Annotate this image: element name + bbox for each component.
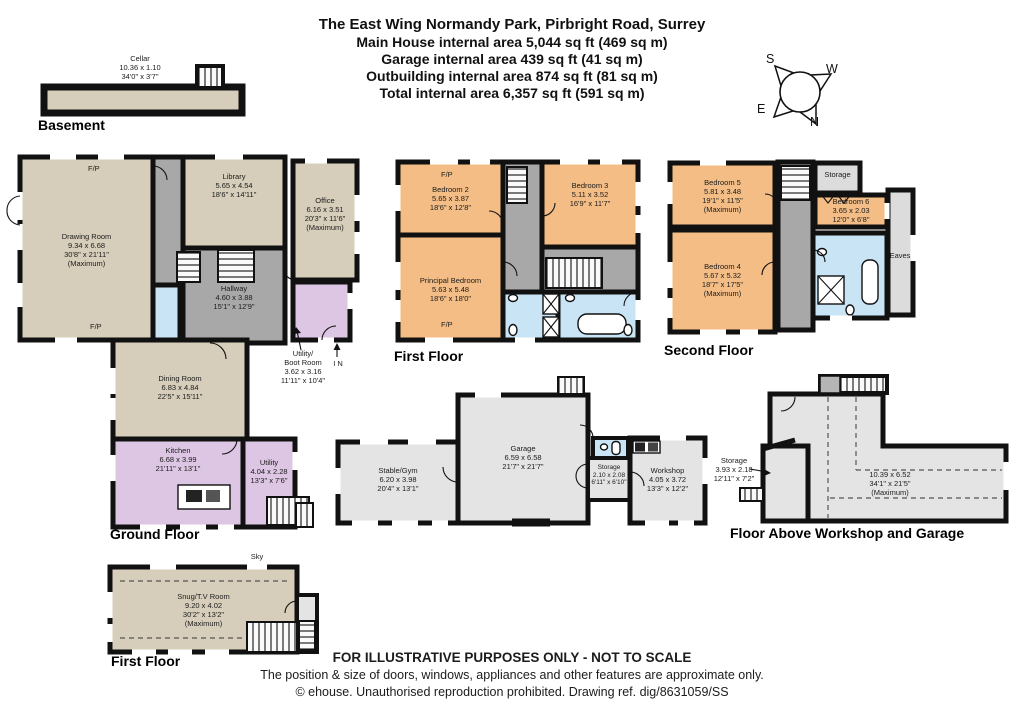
room-dims-metric: 6.83 x 4.84 [113, 383, 247, 392]
room-dims-imperial: 20'3" x 11'6" [293, 214, 357, 223]
room-name: Storage [815, 170, 860, 179]
room-dims-metric: 5.65 x 3.87 [398, 194, 503, 203]
room-storage-above [763, 446, 808, 521]
room-dims-imperial: 22'5" x 15'11" [113, 392, 247, 401]
entrance-label: I N [329, 359, 347, 368]
room-name: Hallway [183, 284, 285, 293]
first-stairs-up [507, 167, 527, 203]
room-dims-imperial: 20'4" x 13'1" [338, 484, 458, 493]
above-stairs-landing [820, 376, 840, 393]
second-stairs [781, 166, 810, 200]
garage-door [512, 519, 550, 527]
room-dims-metric: 3.65 x 2.03 [815, 206, 887, 215]
room-dims-metric: 5.81 x 3.48 [670, 187, 775, 196]
room-dims-imperial: 34'1" x 21'5" [838, 479, 942, 488]
room-name: Office [293, 196, 357, 205]
fireplace-label: F/P [441, 320, 453, 329]
room-dims-imperial: 15'1" x 12'9" [183, 302, 285, 311]
room-name: Bedroom 4 [670, 262, 775, 271]
room-dims-metric: 3.93 x 2.18 [708, 465, 760, 474]
room-label-storage-second: Storage [815, 170, 860, 179]
room-name: Garage [458, 444, 588, 453]
room-label-storage-above: Storage 3.93 x 2.18 12'11" x 7'2" [708, 456, 760, 483]
garage-stairs [558, 377, 584, 394]
caption-basement: Basement [38, 117, 105, 133]
compass-east: E [757, 102, 765, 116]
room-dims-metric: 2.10 x 2.08 [588, 472, 630, 480]
room-label-bedroom-6: Bedroom 6 3.65 x 2.03 12'0" x 6'8" [815, 197, 887, 224]
property-address: The East Wing Normandy Park, Pirbright R… [0, 16, 1024, 34]
workshop-kitchenette [633, 441, 660, 453]
skylight [247, 564, 267, 570]
caption-ground-floor: Ground Floor [110, 526, 199, 542]
footer-copyright: © ehouse. Unauthorised reproduction proh… [0, 685, 1024, 699]
room-dims-imperial: 34'0" x 3'7" [95, 72, 185, 81]
ground-stairs-1 [177, 252, 200, 282]
room-dims-imperial: 13'3" x 12'2" [630, 484, 705, 493]
in-label: I N [329, 359, 347, 368]
room-name: Workshop [630, 466, 705, 475]
caption-first-floor: First Floor [394, 348, 463, 364]
ground-wc [153, 285, 180, 342]
room-label-bedroom-2: Bedroom 2 5.65 x 3.87 18'6" x 12'8" [398, 185, 503, 212]
floorplan-page: The East Wing Normandy Park, Pirbright R… [0, 0, 1024, 723]
ground-stairs-2 [218, 250, 254, 282]
room-dims-imperial: 13'3" x 7'6" [243, 476, 295, 485]
room-name: Bedroom 3 [542, 181, 638, 190]
room-note: (Maximum) [110, 619, 297, 628]
room-dims-imperial: 12'11" x 7'2" [708, 474, 760, 483]
room-label-dining-room: Dining Room 6.83 x 4.84 22'5" x 15'11" [113, 374, 247, 401]
sky-label: Sky [243, 552, 271, 561]
room-name: Eaves [876, 251, 924, 260]
room-dims-metric: 5.11 x 3.52 [542, 190, 638, 199]
room-label-kitchen: Kitchen 6.68 x 3.99 21'11" x 13'1" [113, 446, 243, 473]
room-dims-imperial: 19'1" x 11'5" [670, 196, 775, 205]
room-dims-imperial: 6'11" x 6'10" [588, 479, 630, 487]
room-name: Utility/ [258, 349, 348, 358]
room-name: Library [183, 172, 285, 181]
room-note: (Maximum) [670, 289, 775, 298]
room-label-utility: Utility 4.04 x 2.28 13'3" x 7'6" [243, 458, 295, 485]
room-dims-metric: 6.16 x 3.51 [293, 205, 357, 214]
room-dims-metric: 9.20 x 4.02 [110, 601, 297, 610]
ground-steps-annex [296, 503, 313, 527]
room-label-drawing-room: Drawing Room 9.34 x 6.68 30'8" x 21'11" … [20, 232, 153, 268]
room-dims-metric: 5.67 x 5.32 [670, 271, 775, 280]
caption-floor-above: Floor Above Workshop and Garage [730, 525, 964, 541]
room-dims-metric: 6.59 x 6.58 [458, 453, 588, 462]
footer-approximation-note: The position & size of doors, windows, a… [0, 668, 1024, 682]
room-label-garage: Garage 6.59 x 6.58 21'7" x 21'7" [458, 444, 588, 471]
compass-south: S [766, 52, 774, 66]
room-name: Stable/Gym [338, 466, 458, 475]
room-library [183, 157, 285, 248]
first-stairs-main [546, 258, 602, 288]
room-dims-metric: 4.05 x 3.72 [630, 475, 705, 484]
room-dims-metric: 4.04 x 2.28 [243, 467, 295, 476]
room-label-snug: Snug/T.V Room 9.20 x 4.02 30'2" x 13'2" … [110, 592, 297, 628]
footer-disclaimer: FOR ILLUSTRATIVE PURPOSES ONLY - NOT TO … [0, 650, 1024, 665]
room-dims-imperial: 30'2" x 13'2" [110, 610, 297, 619]
room-label-storage-outbuilding: Storage 2.10 x 2.08 6'11" x 6'10" [588, 464, 630, 487]
room-label-stable-gym: Stable/Gym 6.20 x 3.98 20'4" x 13'1" [338, 466, 458, 493]
total-area: Total internal area 6,357 sq ft (591 sq … [0, 85, 1024, 102]
fireplace-label: F/P [88, 164, 100, 173]
room-dims-metric: 10.36 x 1.10 [95, 63, 185, 72]
room-name: Utility [243, 458, 295, 467]
room-dims-metric: 3.62 x 3.16 [258, 367, 348, 376]
kitchen-island [178, 485, 230, 509]
room-dims-imperial: 16'9" x 11'7" [542, 199, 638, 208]
room-dims-metric: 4.60 x 3.88 [183, 293, 285, 302]
outbuilding-wc [593, 438, 628, 458]
room-name: Dining Room [113, 374, 247, 383]
room-dims-metric: 5.63 x 5.48 [398, 285, 503, 294]
room-dims-metric: 9.34 x 6.68 [20, 241, 153, 250]
room-dims-metric: 10.39 x 6.52 [838, 470, 942, 479]
room-dims-metric: 6.20 x 3.98 [338, 475, 458, 484]
room-label-principal-bedroom: Principal Bedroom 5.63 x 5.48 18'6" x 18… [398, 276, 503, 303]
room-dims-imperial: 18'6" x 18'0" [398, 294, 503, 303]
room-label-hallway: Hallway 4.60 x 3.88 15'1" x 12'9" [183, 284, 285, 311]
caption-second-floor: Second Floor [664, 342, 753, 358]
room-name: Bedroom 6 [815, 197, 887, 206]
main-house-area: Main House internal area 5,044 sq ft (46… [0, 34, 1024, 51]
room-dims-imperial: 18'6" x 14'11" [183, 190, 285, 199]
room-label-cellar: Cellar 10.36 x 1.10 34'0" x 3'7" [95, 54, 185, 81]
room-name: Snug/T.V Room [110, 592, 297, 601]
room-dims-imperial: 21'11" x 13'1" [113, 464, 243, 473]
room-label-open-area: 10.39 x 6.52 34'1" x 21'5" (Maximum) [838, 470, 942, 497]
room-label-workshop: Workshop 4.05 x 3.72 13'3" x 12'2" [630, 466, 705, 493]
room-note: (Maximum) [670, 205, 775, 214]
room-name: Principal Bedroom [398, 276, 503, 285]
room-name: Storage [708, 456, 760, 465]
room-name: Kitchen [113, 446, 243, 455]
room-label-office: Office 6.16 x 3.51 20'3" x 11'6" (Maximu… [293, 196, 357, 232]
room-boot-room [293, 282, 350, 340]
room-dims-metric: 6.68 x 3.99 [113, 455, 243, 464]
room-name: Drawing Room [20, 232, 153, 241]
above-stairs-left [740, 488, 763, 501]
room-dims-imperial: 30'8" x 21'11" [20, 250, 153, 259]
room-name: Bedroom 5 [670, 178, 775, 187]
eaves-label: Eaves [876, 251, 924, 260]
room-name: Cellar [95, 54, 185, 63]
compass-north: N [810, 115, 819, 129]
room-note: (Maximum) [293, 223, 357, 232]
snug-annex-stairs [299, 621, 315, 650]
window [1004, 462, 1009, 490]
fireplace-label: F/P [90, 322, 102, 331]
room-dims-imperial: 11'11" x 10'4" [258, 376, 348, 385]
skylight-label: Sky [243, 552, 271, 561]
room-label-library: Library 5.65 x 4.54 18'6" x 14'11" [183, 172, 285, 199]
room-dims-imperial: 18'6" x 12'8" [398, 203, 503, 212]
room-name: Storage [588, 464, 630, 472]
compass-west: W [826, 62, 838, 76]
room-label-bedroom-3: Bedroom 3 5.11 x 3.52 16'9" x 11'7" [542, 181, 638, 208]
room-dims-metric: 5.65 x 4.54 [183, 181, 285, 190]
floor-above-plan [740, 376, 1009, 521]
room-label-bedroom-4: Bedroom 4 5.67 x 5.32 18'7" x 17'5" (Max… [670, 262, 775, 298]
room-note: (Maximum) [20, 259, 153, 268]
room-note: (Maximum) [838, 488, 942, 497]
room-dims-imperial: 21'7" x 21'7" [458, 462, 588, 471]
room-dims-imperial: 12'0" x 6'8" [815, 215, 887, 224]
room-name: Bedroom 2 [398, 185, 503, 194]
room-dims-imperial: 18'7" x 17'5" [670, 280, 775, 289]
room-label-bedroom-5: Bedroom 5 5.81 x 3.48 19'1" x 11'5" (Max… [670, 178, 775, 214]
fireplace-label: F/P [441, 170, 453, 179]
